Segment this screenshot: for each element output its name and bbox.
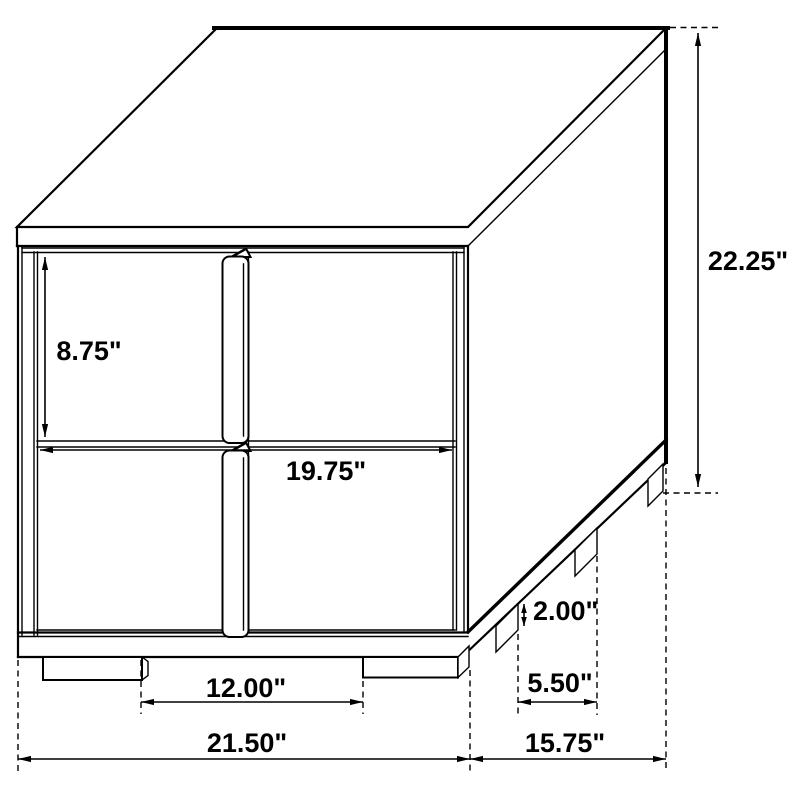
- nightstand-dimension-diagram: 22.25" 8.75" 19.75" 12.00" 21.50" 15.75"…: [0, 0, 800, 800]
- side-feet-gap-label: 5.50": [527, 668, 592, 698]
- overall-width-label: 21.50": [207, 728, 287, 758]
- handle-bottom-bar: [223, 451, 249, 638]
- height-label: 22.25": [708, 246, 788, 276]
- dimension-front-feet-gap: 12.00": [141, 660, 363, 714]
- drawer-handle-top: [223, 249, 251, 444]
- drawer-height-label: 8.75": [56, 336, 121, 366]
- side-rear-foot: [648, 464, 663, 506]
- side-middle-foot: [575, 528, 597, 576]
- front-feet-gap-label: 12.00": [206, 673, 286, 703]
- cabinet-top-panel: [17, 28, 668, 246]
- depth-label: 15.75": [525, 728, 605, 758]
- dimension-base-height: 2.00": [524, 596, 598, 626]
- handle-top-bar: [223, 257, 249, 444]
- dimension-overall-height: 22.25": [663, 28, 788, 494]
- drawer-width-label: 19.75": [286, 456, 366, 486]
- front-right-foot-side: [458, 646, 469, 678]
- base-feet: [43, 464, 663, 680]
- dimension-diagram-page: 22.25" 8.75" 19.75" 12.00" 21.50" 15.75"…: [0, 0, 800, 800]
- dimension-side-feet-gap: 5.50": [518, 556, 597, 715]
- base-height-label: 2.00": [533, 596, 598, 626]
- side-front-foot: [496, 604, 518, 652]
- dimension-drawer-height: 8.75": [45, 257, 122, 437]
- drawer-handle-bottom: [223, 443, 251, 638]
- side-base-bottom-edge: [462, 463, 666, 657]
- front-left-foot: [43, 657, 142, 680]
- tabletop-face: [17, 28, 666, 227]
- front-right-foot: [363, 657, 458, 678]
